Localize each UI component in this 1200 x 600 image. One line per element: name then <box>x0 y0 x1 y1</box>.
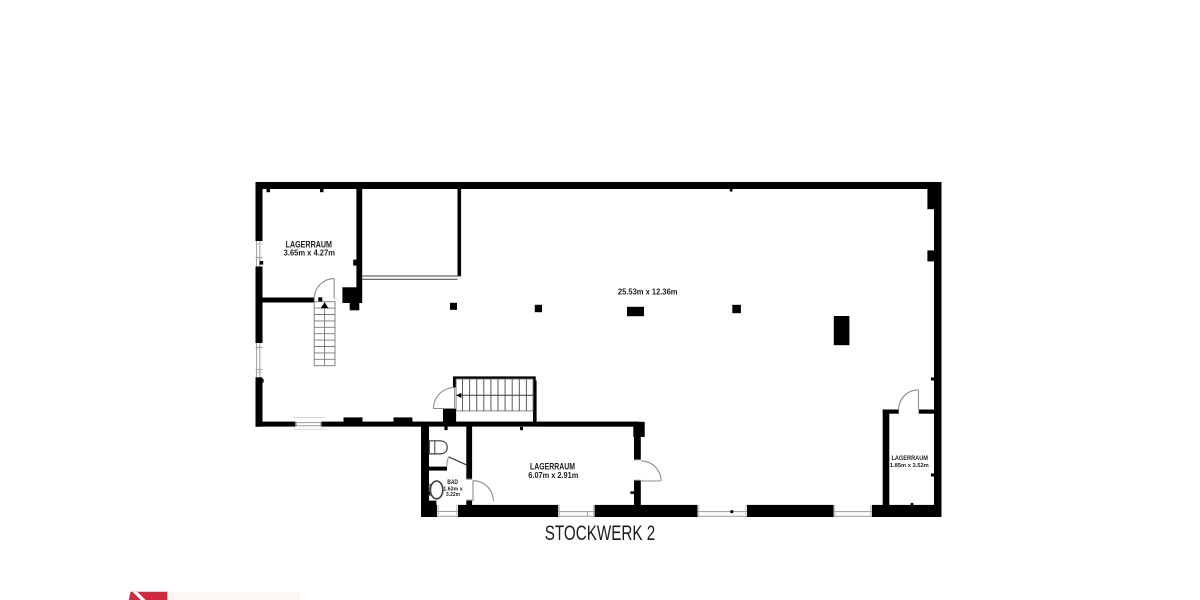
svg-text:LAGERRAUM: LAGERRAUM <box>530 461 575 471</box>
svg-text:25.53m x 12.36m: 25.53m x 12.36m <box>618 287 678 297</box>
svg-text:LAGERRAUM: LAGERRAUM <box>891 455 928 462</box>
svg-text:3.22m: 3.22m <box>446 492 460 498</box>
svg-text:BAD: BAD <box>447 479 458 486</box>
svg-text:STOCKWERK 2: STOCKWERK 2 <box>545 522 656 545</box>
svg-text:3.65m x 4.27m: 3.65m x 4.27m <box>284 249 335 258</box>
svg-text:6.07m x 2.91m: 6.07m x 2.91m <box>528 471 578 480</box>
svg-text:1.85m x 3.52m: 1.85m x 3.52m <box>890 463 929 469</box>
